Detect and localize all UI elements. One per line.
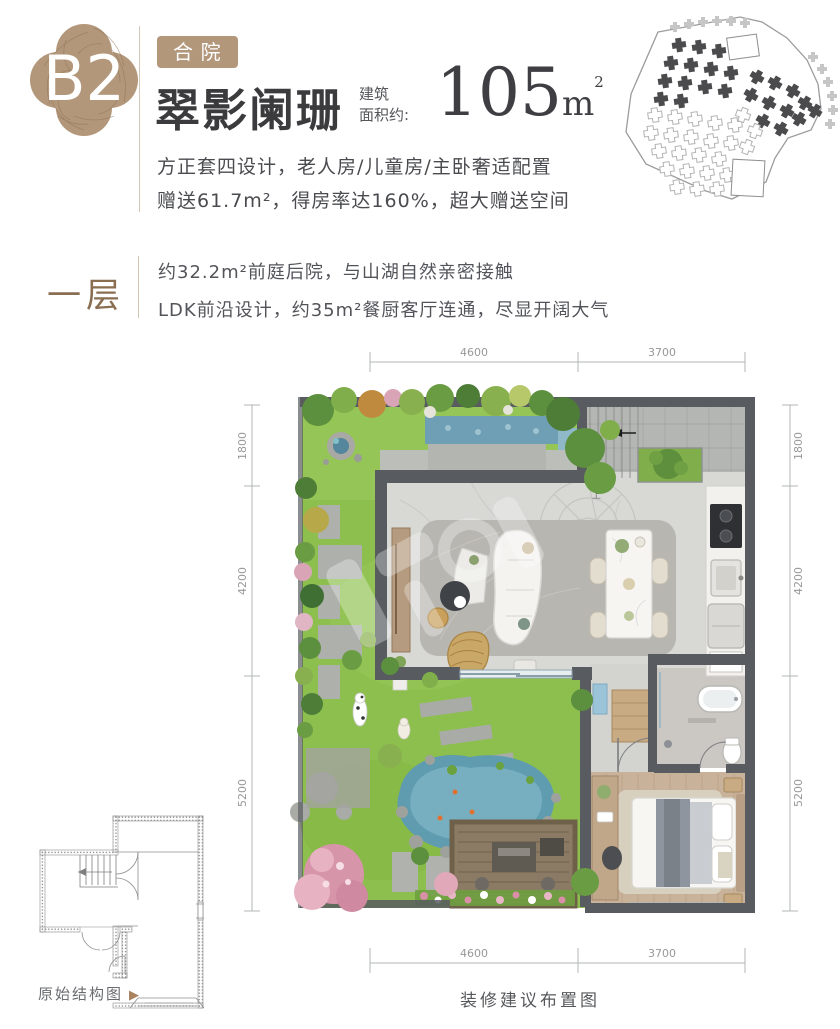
structure-doors [82,852,204,973]
dim-top-3700: 3700 [648,346,676,359]
pillow-1 [712,804,732,840]
floor-feature-line1: 约32.2m²前庭后院，与山湖自然亲密接触 [158,258,514,284]
badge-text: B2 [43,42,125,115]
page-title: 翠影阑珊 [155,74,343,139]
product-type-tag: 合院 [157,36,238,68]
structure-walls [40,816,203,1008]
dim-left-5200: 5200 [236,779,249,807]
header-divider [139,26,140,212]
structure-plan-label-text: 原始结构图 [38,985,123,1003]
floor-level-label: 一层 [47,268,125,317]
section-divider [138,256,139,318]
site-facility-2 [731,159,765,197]
dim-right-5200: 5200 [792,779,805,807]
selling-point-line2: 赠送61.7m²，得房率达160%，超大赠送空间 [157,186,570,213]
area-label-line1: 建筑 [359,84,409,105]
b2-medallion-badge: B2 [30,20,138,140]
area-unit: m [562,84,594,124]
area-label: 建筑 面积约: [359,84,409,126]
shower-head [664,740,672,748]
headboard [736,794,745,892]
desk-chair [602,846,622,870]
area-label-line2: 面积约: [359,105,409,126]
arrow-right-icon: ▶ [129,988,141,1003]
area-superscript: 2 [594,73,604,91]
plan-caption: 装修建议布置图 [230,986,830,1011]
dim-bottom-4600: 4600 [460,947,488,960]
kitchen [706,486,748,676]
bath-shelf [688,718,716,723]
structure-plan-label: 原始结构图▶ [38,983,141,1004]
selling-point-line1: 方正套四设计，老人房/儿童房/主卧奢适配置 [157,152,552,179]
bed [632,794,745,892]
dim-right-1800: 1800 [792,432,805,460]
terrace-planter [638,448,702,482]
site-facility-1 [727,34,760,60]
masterplan-site-map [612,12,838,232]
area-number: 105 [436,54,562,131]
floor-feature-line2: LDK前沿设计，约35m²餐厨客厅连通，尽显开阔大气 [158,296,609,322]
shower-mat [593,684,607,714]
dim-bottom-3700: 3700 [648,947,676,960]
dim-right-4200: 4200 [792,567,805,595]
dim-left-1800: 1800 [236,432,249,460]
brochure-page: { "colors":{"accent_tan":"#b2977b","brow… [0,0,840,1029]
dim-top-4600: 4600 [460,346,488,359]
structure-stairs [78,855,118,887]
dim-left-4200: 4200 [236,567,249,595]
sliding-door [460,670,572,678]
area-value: 105m2 [436,58,604,128]
side-table [440,581,470,611]
